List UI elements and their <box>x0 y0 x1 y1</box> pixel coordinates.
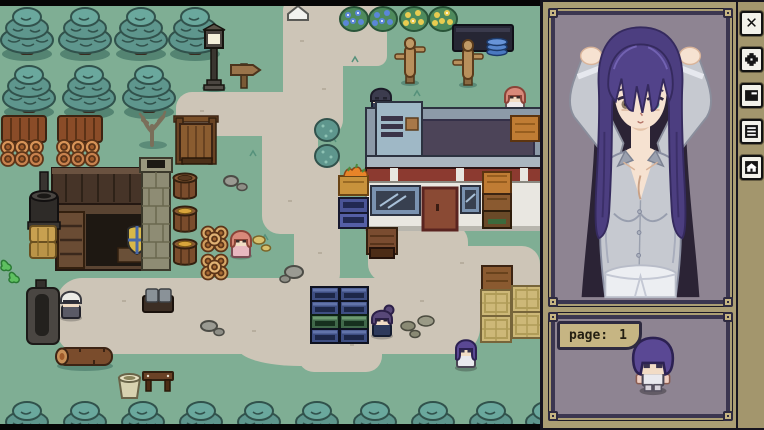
trough <box>27 280 59 344</box>
cabinet <box>367 228 397 258</box>
side-toolbar: ✕ <box>736 0 764 430</box>
home-button[interactable] <box>740 155 763 180</box>
list-icon <box>744 124 759 139</box>
close-button[interactable]: ✕ <box>740 11 763 36</box>
character-panel: page: 1 <box>540 0 736 430</box>
page-frame: page: 1 <box>551 315 730 418</box>
barrel <box>174 207 197 233</box>
fallen-log <box>56 348 113 371</box>
stone-tower <box>140 158 172 270</box>
page-tab: page: 1 <box>557 321 642 350</box>
lumber-stack <box>1 116 46 166</box>
cart <box>174 116 218 164</box>
frame-corner <box>723 312 733 322</box>
shop-door[interactable] <box>423 188 457 230</box>
settings-button[interactable] <box>740 47 763 72</box>
map-canvas[interactable] <box>0 0 540 430</box>
bucket <box>119 374 140 398</box>
game-window: page: 1 ✕ <box>0 0 764 430</box>
portrait-frame <box>551 11 730 304</box>
npc-pink-haired-villager-logs[interactable] <box>230 231 252 260</box>
page-label: page: <box>569 328 608 343</box>
npc-white-helmet-knight[interactable] <box>60 292 82 322</box>
page-number: 1 <box>619 328 627 343</box>
close-icon: ✕ <box>745 16 758 31</box>
frame-corner <box>723 297 733 307</box>
counter-with-plates <box>453 25 513 56</box>
frame-corner <box>548 411 558 421</box>
frame-corner <box>723 411 733 421</box>
book-icon <box>744 88 759 103</box>
couch <box>143 289 173 312</box>
frame-corner <box>548 297 558 307</box>
book-button[interactable] <box>740 83 763 108</box>
crate-stack <box>483 172 511 228</box>
game-map[interactable] <box>0 0 540 430</box>
barrel <box>174 240 197 266</box>
barrel <box>174 174 197 200</box>
list-button[interactable] <box>740 119 763 144</box>
letterbox-bottom <box>0 424 540 430</box>
character-portrait <box>555 15 726 300</box>
frame-corner <box>548 312 558 322</box>
npc-purple-haired-girl[interactable] <box>455 340 477 371</box>
log-pile <box>202 255 228 280</box>
log-pile <box>202 227 228 252</box>
gear-icon <box>744 52 759 67</box>
orange-crate <box>511 116 539 141</box>
lumber-stack <box>57 116 102 166</box>
frame-corner <box>548 8 558 18</box>
wood-boxes <box>30 226 56 258</box>
crate-stack-bottom <box>311 287 368 343</box>
home-icon <box>744 160 759 175</box>
blue-crates <box>339 198 368 228</box>
letterbox-top <box>0 0 540 6</box>
frame-corner <box>723 8 733 18</box>
